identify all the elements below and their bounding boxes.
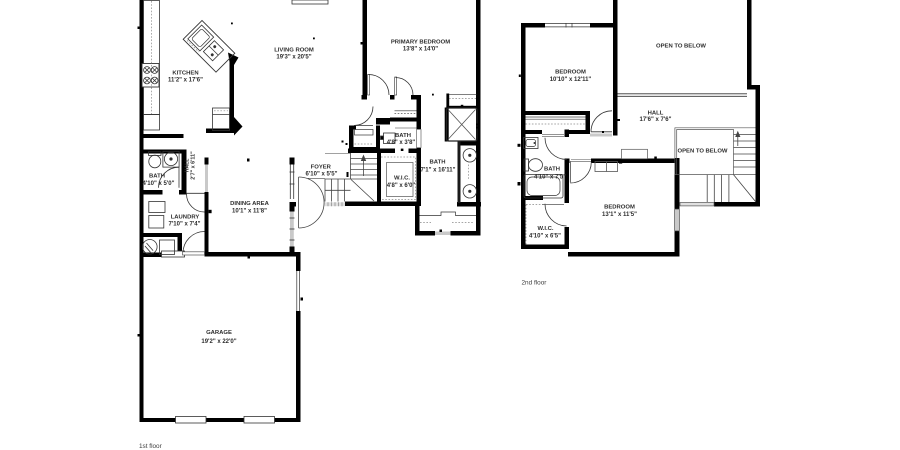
svg-text:LIVING ROOM: LIVING ROOM	[274, 48, 314, 54]
svg-text:BATH: BATH	[430, 160, 446, 166]
svg-text:BATH: BATH	[544, 167, 560, 173]
svg-text:11'2" x 17'6": 11'2" x 17'6"	[168, 78, 203, 84]
svg-text:19'3" x 20'5": 19'3" x 20'5"	[276, 55, 311, 61]
svg-text:10'1" x 11'8": 10'1" x 11'8"	[232, 209, 267, 215]
svg-text:4'10" x 5'0": 4'10" x 5'0"	[143, 181, 175, 187]
svg-text:13'1" x 11'5": 13'1" x 11'5"	[602, 212, 637, 218]
svg-text:7'1" x 16'11": 7'1" x 16'11"	[421, 168, 456, 174]
svg-text:6'10" x 5'5": 6'10" x 5'5"	[306, 172, 338, 178]
svg-text:OPEN TO BELOW: OPEN TO BELOW	[678, 149, 728, 155]
svg-text:LAUNDRY: LAUNDRY	[171, 214, 200, 220]
svg-text:BEDROOM: BEDROOM	[604, 205, 635, 211]
svg-text:PRIMARY BEDROOM: PRIMARY BEDROOM	[391, 40, 450, 46]
svg-text:4'10" x 7'5": 4'10" x 7'5"	[534, 175, 566, 181]
svg-text:W.I.C.: W.I.C.	[537, 226, 553, 232]
svg-text:4'10" x 6'5": 4'10" x 6'5"	[529, 234, 561, 240]
svg-text:7'10" x 7'4": 7'10" x 7'4"	[169, 222, 201, 228]
svg-text:GARAGE: GARAGE	[206, 330, 232, 336]
svg-text:10'10" x 12'11": 10'10" x 12'11"	[550, 77, 592, 83]
svg-text:HALL: HALL	[185, 158, 191, 173]
svg-text:KITCHEN: KITCHEN	[172, 71, 198, 77]
svg-text:17'6" x 7'6": 17'6" x 7'6"	[640, 117, 672, 123]
svg-text:2'7" x 6'11": 2'7" x 6'11"	[191, 151, 197, 180]
svg-text:BATH: BATH	[395, 133, 411, 139]
svg-text:19'2" x 22'0": 19'2" x 22'0"	[201, 339, 236, 345]
svg-text:W.I.C.: W.I.C.	[394, 176, 410, 182]
svg-text:FOYER: FOYER	[311, 165, 332, 171]
svg-text:13'8" x 14'0": 13'8" x 14'0"	[403, 47, 438, 53]
svg-text:BEDROOM: BEDROOM	[555, 70, 586, 76]
svg-text:HALL: HALL	[648, 111, 664, 117]
svg-text:OPEN TO BELOW: OPEN TO BELOW	[656, 44, 706, 50]
svg-text:2nd floor: 2nd floor	[522, 280, 548, 287]
svg-text:4'8" x 6'0": 4'8" x 6'0"	[387, 183, 416, 189]
svg-text:DINING AREA: DINING AREA	[230, 201, 269, 207]
svg-text:1st floor: 1st floor	[139, 443, 163, 450]
svg-text:4'8" x 3'8": 4'8" x 3'8"	[387, 140, 416, 146]
svg-text:BATH: BATH	[149, 174, 165, 180]
